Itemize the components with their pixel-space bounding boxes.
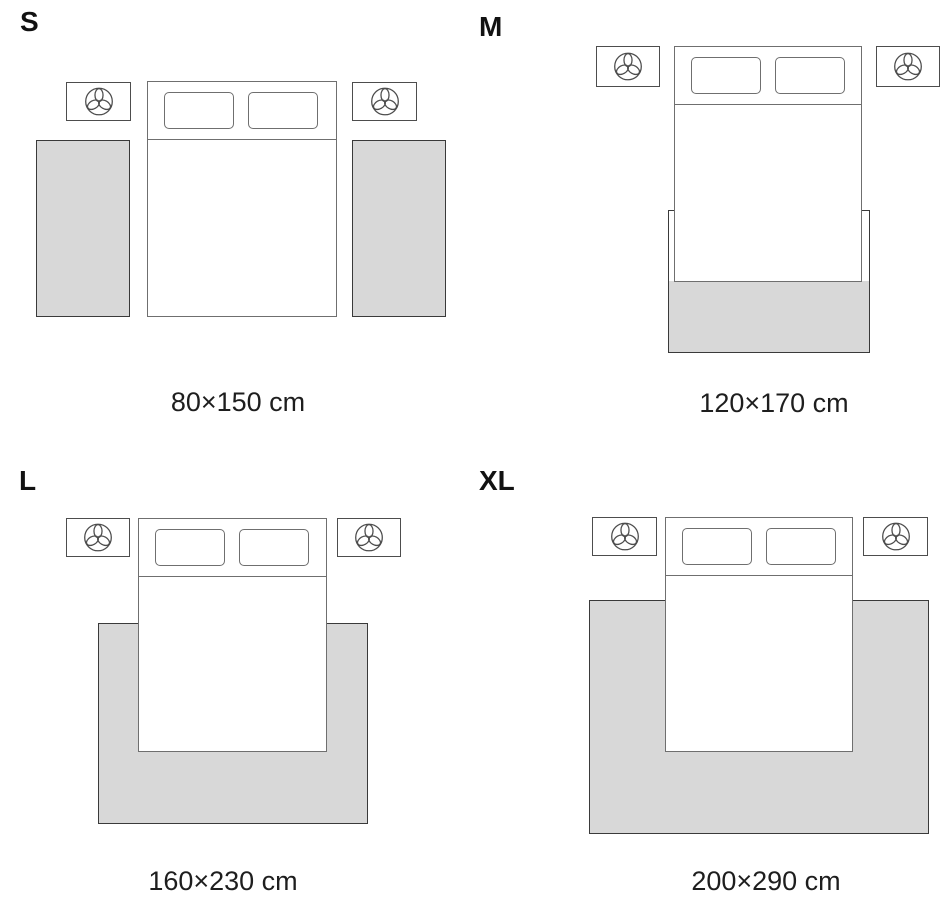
nightstand-left	[66, 82, 131, 121]
nightstand-right	[337, 518, 401, 557]
bed	[674, 46, 862, 282]
rug-dimensions-xl: 200×290 cm	[666, 867, 866, 897]
pillow	[766, 528, 836, 565]
nightstand-left	[66, 518, 130, 557]
rug-size-guide: S 80×150 cm	[0, 0, 950, 900]
rug-visible-area	[669, 281, 869, 352]
pillow	[682, 528, 752, 565]
bed-headboard	[139, 519, 326, 577]
rug-dimensions-m: 120×170 cm	[674, 389, 874, 419]
pillow	[248, 92, 318, 129]
bed-headboard	[148, 82, 336, 140]
nightstand-right	[876, 46, 940, 87]
nightstand-right	[863, 517, 928, 556]
plant-icon	[606, 520, 644, 553]
bed	[665, 517, 853, 752]
pillow	[164, 92, 234, 129]
plant-icon	[877, 520, 915, 553]
plant-icon	[350, 521, 388, 554]
size-label-l: L	[19, 466, 36, 497]
rug-dimensions-l: 160×230 cm	[123, 867, 323, 897]
size-label-m: M	[479, 12, 502, 43]
pillow	[775, 57, 845, 94]
plant-icon	[79, 521, 117, 554]
size-label-s: S	[20, 7, 39, 38]
plant-icon	[366, 85, 404, 118]
plant-icon	[609, 50, 647, 83]
nightstand-right	[352, 82, 417, 121]
rug-left-runner	[36, 140, 130, 317]
bed-headboard	[666, 518, 852, 576]
rug-dimensions-s: 80×150 cm	[138, 388, 338, 418]
size-label-xl: XL	[479, 466, 515, 497]
bed	[138, 518, 327, 752]
nightstand-left	[596, 46, 660, 87]
bed-headboard	[675, 47, 861, 105]
pillow	[155, 529, 225, 566]
pillow	[239, 529, 309, 566]
nightstand-left	[592, 517, 657, 556]
rug-right-runner	[352, 140, 446, 317]
pillow	[691, 57, 761, 94]
plant-icon	[889, 50, 927, 83]
plant-icon	[80, 85, 118, 118]
bed	[147, 81, 337, 317]
